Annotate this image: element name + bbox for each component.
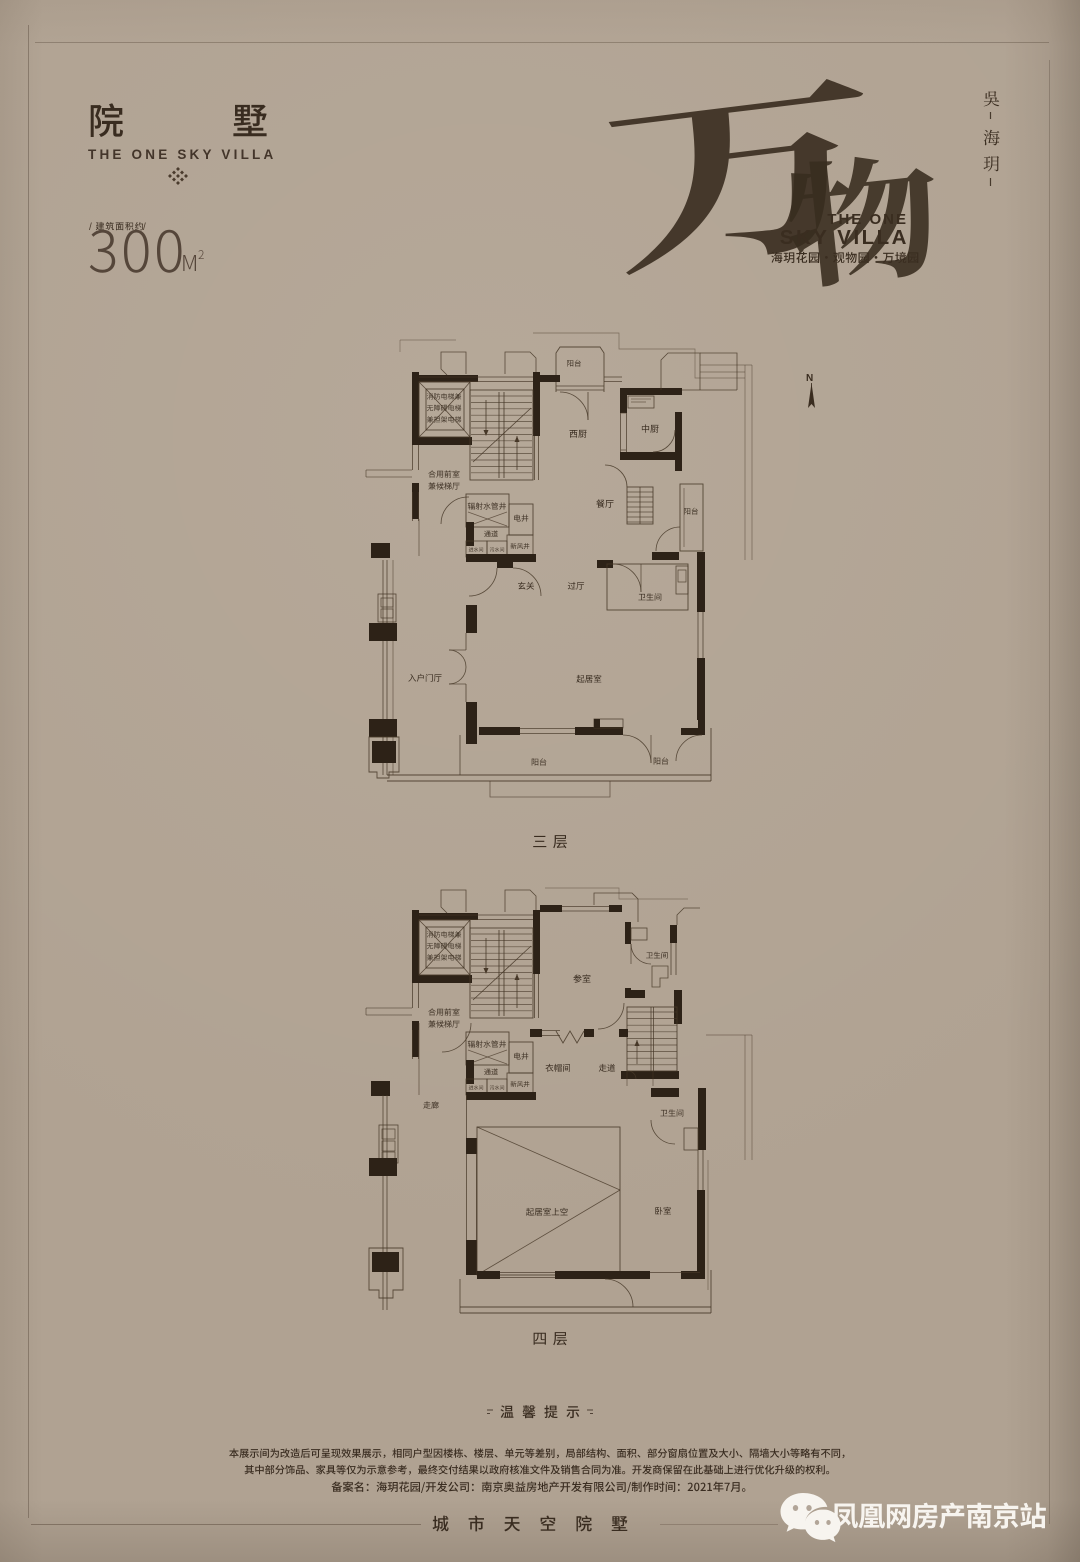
svg-text:THE ONE SKY VILLA: THE ONE SKY VILLA <box>88 147 276 162</box>
svg-text:/: / <box>143 222 146 233</box>
svg-text:SKY VILLA: SKY VILLA <box>780 226 909 249</box>
svg-text:/: / <box>89 222 92 233</box>
svg-text:N: N <box>806 373 813 384</box>
